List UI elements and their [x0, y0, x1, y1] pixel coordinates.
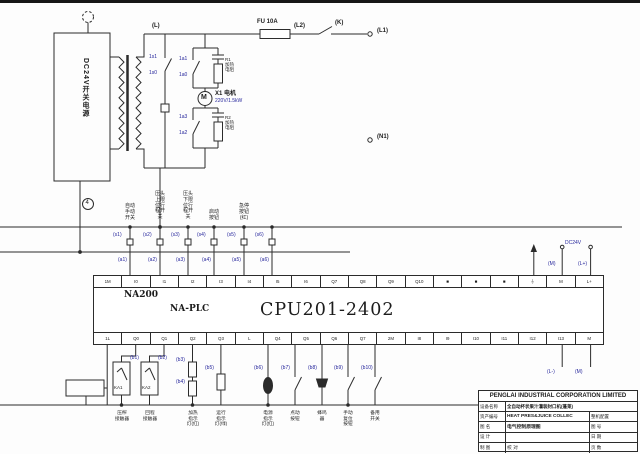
terminal-cell: ■: [434, 276, 462, 287]
title-block: PENGLAI INDUSTRIAL CORPORATION LIMITED 设…: [478, 390, 638, 452]
titleblock-value: 校 对: [506, 443, 590, 453]
terminal-cell: I9: [434, 333, 462, 344]
psu-label: DC24V开关电源: [80, 58, 90, 158]
motor-name: X1 电机: [215, 91, 236, 98]
plc-family-label: NA-PLC: [170, 304, 209, 314]
plc-top-terminal-strip: 1MI0I1I2I3I4I5I6Q7Q8Q9Q10■■■⏚ML+: [94, 276, 603, 288]
terminal-cell: Q2: [179, 333, 207, 344]
terminal-cell: L+: [576, 276, 603, 287]
terminal-cell: I5: [264, 276, 292, 287]
terminal-cell: 1L: [94, 333, 122, 344]
terminal-cell: Q10: [406, 276, 434, 287]
company-name: PENGLAI INDUSTRIAL CORPORATION LIMITED: [479, 391, 637, 402]
terminal-cell: I11: [491, 333, 519, 344]
node-label-n1: (N1): [377, 134, 389, 141]
terminal-cell: I6: [292, 276, 320, 287]
terminal-cell: I10: [462, 333, 490, 344]
plc-cpu-label: CPU201-2402: [260, 300, 394, 320]
terminal-cell: I2: [179, 276, 207, 287]
terminal-cell: Q7: [321, 276, 349, 287]
terminal-cell: I4: [236, 276, 264, 287]
switch-k-label: (K): [335, 20, 343, 27]
terminal-cell: Q9: [377, 276, 405, 287]
terminal-cell: I0: [122, 276, 150, 287]
plc-bottom-terminal-strip: 1LQ0Q1Q2Q3LQ4Q5Q6Q72MI8I9I10I11I12I13M: [94, 332, 603, 344]
motor-symbol-letter: M: [201, 94, 207, 101]
terminal-cell: Q3: [207, 333, 235, 344]
plc-series-label: NA200: [124, 290, 158, 300]
terminal-cell: Q6: [321, 333, 349, 344]
plc-block: 1MI0I1I2I3I4I5I6Q7Q8Q9Q10■■■⏚ML+ NA200 N…: [93, 275, 604, 345]
circuit-linework: [0, 0, 640, 454]
terminal-cell: Q5: [292, 333, 320, 344]
terminal-cell: Q0: [122, 333, 150, 344]
asset-name: HEAT PRES&JUICE COLLEC: [506, 412, 590, 421]
titleblock-extra: 日 期: [590, 433, 637, 442]
terminal-cell: I12: [519, 333, 547, 344]
drawing-name: 电气控制原理图: [506, 422, 590, 431]
terminal-cell: I13: [547, 333, 575, 344]
terminal-cell: M: [576, 333, 603, 344]
terminal-cell: Q1: [151, 333, 179, 344]
node-label-l1: (L1): [377, 28, 388, 35]
terminal-cell: ■: [462, 276, 490, 287]
equipment-name: 全自动杯状果汁灌装封口机(蓬莱): [506, 402, 637, 411]
terminal-cell: Q8: [349, 276, 377, 287]
terminal-cell: Q7: [349, 333, 377, 344]
terminal-cell: 1M: [94, 276, 122, 287]
terminal-cell: ⏚: [519, 276, 547, 287]
schematic-page: DC24V开关电源 (L) FU 10A (L2) (K) (L1) (N1) …: [0, 0, 640, 454]
fuse-label: FU 10A: [257, 19, 278, 26]
terminal-cell: ■: [491, 276, 519, 287]
sheet-marker: 4: [86, 200, 89, 207]
node-label-l2: (L2): [294, 23, 305, 30]
terminal-cell: L: [236, 333, 264, 344]
node-label-l: (L): [152, 23, 160, 30]
terminal-cell: I8: [406, 333, 434, 344]
terminal-cell: M: [547, 276, 575, 287]
titleblock-value: [506, 433, 590, 442]
titleblock-extra: 页 数: [590, 443, 637, 453]
motor-rating: 220V/1.5kW: [215, 99, 242, 105]
terminal-cell: I3: [207, 276, 235, 287]
titleblock-label: 资产编号: [479, 412, 506, 421]
titleblock-extra: 图 号: [590, 422, 637, 431]
titleblock-label: 制 图: [479, 443, 506, 453]
titleblock-label: 设备名称: [479, 402, 506, 411]
titleblock-extra: 整机配置: [590, 412, 637, 421]
terminal-cell: I1: [151, 276, 179, 287]
titleblock-label: 图 名: [479, 422, 506, 431]
titleblock-label: 设 计: [479, 433, 506, 442]
terminal-cell: 2M: [377, 333, 405, 344]
terminal-cell: Q4: [264, 333, 292, 344]
